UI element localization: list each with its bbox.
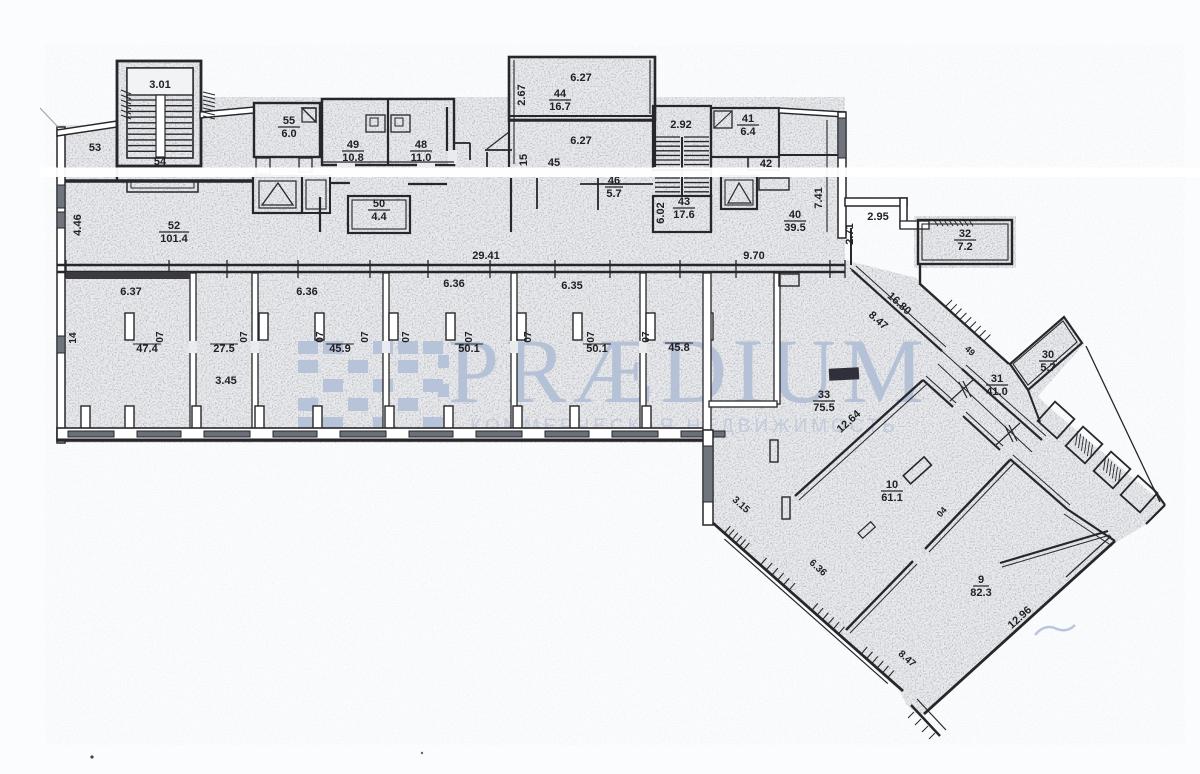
- svg-text:39.5: 39.5: [784, 222, 805, 234]
- svg-text:50.1: 50.1: [458, 343, 479, 355]
- svg-text:17.6: 17.6: [673, 209, 694, 221]
- svg-text:30: 30: [1042, 349, 1054, 361]
- svg-text:6.35: 6.35: [561, 280, 582, 292]
- svg-text:07: 07: [586, 331, 597, 343]
- svg-text:2.71: 2.71: [844, 223, 856, 244]
- svg-text:3.45: 3.45: [215, 375, 236, 387]
- svg-text:15: 15: [518, 154, 530, 166]
- svg-text:07: 07: [155, 331, 166, 343]
- svg-text:43: 43: [678, 196, 690, 208]
- svg-text:6.02: 6.02: [655, 202, 667, 223]
- svg-text:32: 32: [959, 228, 971, 240]
- svg-text:07: 07: [315, 331, 326, 343]
- svg-text:40: 40: [789, 209, 801, 221]
- svg-text:52: 52: [168, 220, 180, 232]
- svg-text:9: 9: [978, 574, 984, 586]
- svg-text:55: 55: [283, 115, 295, 127]
- svg-text:82.3: 82.3: [970, 587, 991, 599]
- svg-text:33: 33: [818, 389, 830, 401]
- svg-text:7.2: 7.2: [957, 241, 972, 253]
- svg-text:41.0: 41.0: [986, 386, 1007, 398]
- svg-text:6.36: 6.36: [296, 286, 317, 298]
- svg-text:2.92: 2.92: [670, 119, 691, 131]
- svg-text:47.4: 47.4: [136, 343, 158, 355]
- svg-text:101.4: 101.4: [160, 233, 188, 245]
- svg-text:61.1: 61.1: [881, 492, 902, 504]
- svg-text:3.01: 3.01: [149, 79, 170, 91]
- svg-text:07: 07: [401, 331, 412, 343]
- svg-text:2.67: 2.67: [516, 84, 528, 105]
- svg-text:2.95: 2.95: [867, 211, 888, 223]
- svg-text:6.27: 6.27: [570, 72, 591, 84]
- svg-text:6.0: 6.0: [281, 128, 296, 140]
- svg-text:6.4: 6.4: [740, 126, 756, 138]
- svg-text:16.7: 16.7: [549, 101, 570, 113]
- svg-text:53: 53: [89, 142, 101, 154]
- svg-text:6.37: 6.37: [120, 286, 141, 298]
- svg-text:41: 41: [742, 113, 754, 125]
- svg-text:75.5: 75.5: [813, 402, 834, 414]
- svg-text:45: 45: [548, 157, 560, 169]
- svg-text:6.27: 6.27: [570, 135, 591, 147]
- svg-text:07: 07: [360, 331, 371, 343]
- svg-text:29.41: 29.41: [472, 250, 500, 262]
- svg-text:4.4: 4.4: [371, 211, 387, 223]
- svg-text:45.9: 45.9: [329, 343, 350, 355]
- svg-text:27.5: 27.5: [213, 343, 234, 355]
- svg-text:50.1: 50.1: [586, 343, 607, 355]
- svg-text:48: 48: [415, 139, 427, 151]
- svg-text:54: 54: [154, 156, 167, 168]
- svg-text:07: 07: [641, 331, 652, 343]
- svg-text:07: 07: [239, 331, 250, 343]
- svg-text:31: 31: [991, 373, 1003, 385]
- svg-text:4.46: 4.46: [72, 214, 84, 235]
- svg-text:07: 07: [523, 331, 534, 343]
- svg-text:07: 07: [464, 331, 475, 343]
- svg-text:5.7: 5.7: [606, 188, 621, 200]
- svg-text:50: 50: [373, 198, 385, 210]
- svg-text:5.7: 5.7: [1040, 362, 1055, 374]
- svg-text:45.8: 45.8: [668, 342, 689, 354]
- svg-text:6.36: 6.36: [443, 278, 464, 290]
- svg-text:7.41: 7.41: [813, 187, 825, 208]
- svg-text:9.70: 9.70: [743, 250, 764, 262]
- svg-text:49: 49: [347, 139, 359, 151]
- svg-text:14: 14: [68, 332, 79, 344]
- svg-text:10: 10: [886, 479, 898, 491]
- svg-text:44: 44: [554, 88, 567, 100]
